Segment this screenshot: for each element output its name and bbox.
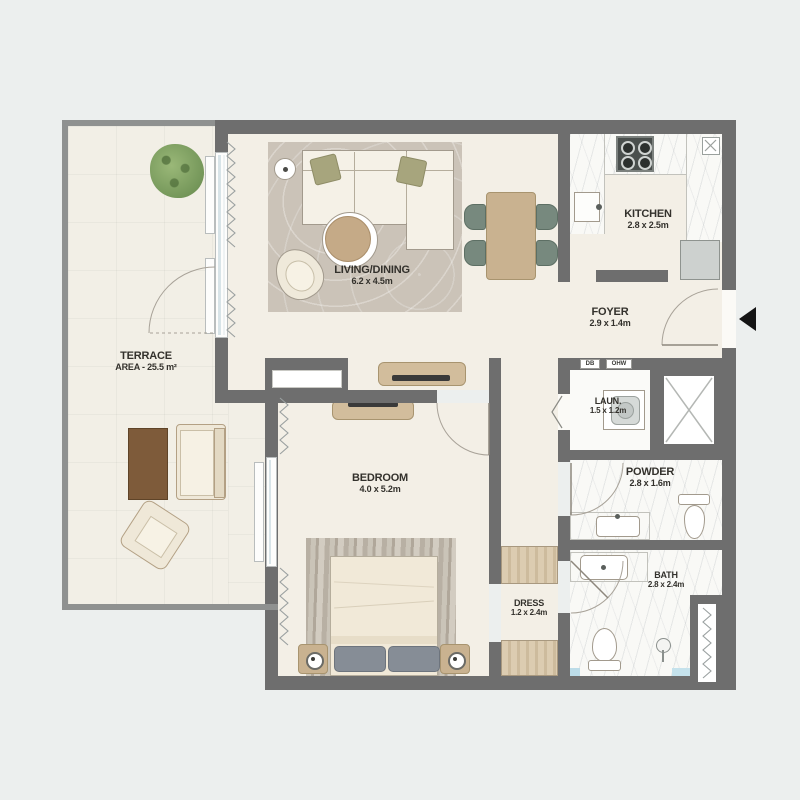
- bed-pillow: [388, 646, 440, 672]
- wall-dress-left-2: [489, 546, 501, 584]
- terrace-door-pane: [218, 155, 221, 335]
- stove-burner: [638, 156, 652, 170]
- wall-utility-bottom: [558, 450, 722, 460]
- wall-kitchen-left: [558, 134, 570, 282]
- shaft-x: [664, 376, 714, 444]
- dining-chair: [464, 204, 486, 230]
- room-label-laundry: LAUN. 1.5 x 1.2m: [590, 396, 626, 415]
- nightstand-lamp-dot: [311, 657, 315, 661]
- room-label-dress: DRESS 1.2 x 2.4m: [511, 598, 547, 617]
- floor-drain: [570, 668, 580, 676]
- bath-shaft: [698, 604, 716, 682]
- tv-console-living: [378, 362, 466, 386]
- bath-toilet-bowl: [592, 628, 617, 662]
- room-label-bedroom: BEDROOM 4.0 x 5.2m: [352, 472, 408, 495]
- dining-table: [486, 192, 536, 280]
- corridor-floor: [501, 358, 558, 546]
- wall-corridor-right-3: [558, 613, 570, 676]
- sofa-pillow: [395, 155, 427, 187]
- room-label-kitchen: KITCHEN 2.8 x 2.5m: [624, 208, 672, 231]
- wall-door-stub: [489, 358, 501, 403]
- dining-chair: [536, 240, 558, 266]
- floor-lamp-dot: [283, 167, 288, 172]
- wardrobe: [501, 546, 558, 584]
- terrace-door-sill: [205, 258, 215, 334]
- wall-laundry-right: [650, 370, 660, 452]
- wall-powder-bath: [558, 540, 722, 550]
- wall-kitchen-bottom: [596, 270, 668, 282]
- wall-corridor-right-2: [558, 516, 570, 561]
- powder-sink: [596, 516, 640, 537]
- tree-icon: [150, 144, 204, 198]
- bedroom-window: [266, 457, 277, 567]
- coffee-table-top: [325, 216, 371, 262]
- room-label-foyer: FOYER 2.9 x 1.4m: [589, 306, 630, 329]
- nightstand-lamp-dot: [453, 657, 457, 661]
- shower-stem: [662, 650, 664, 662]
- bath-toilet-tank: [588, 660, 621, 671]
- stove-burner: [638, 141, 652, 155]
- vent-icon: [702, 137, 720, 155]
- laundry-door-opening: [558, 394, 570, 430]
- kitchen-sink-faucet: [596, 204, 602, 210]
- wall-tag-db: DB: [580, 359, 600, 369]
- powder-toilet-tank: [678, 494, 710, 505]
- wall-tag-ohw: OHW: [606, 359, 632, 369]
- wall-terrace-top: [62, 120, 215, 126]
- bath-faucet: [601, 565, 606, 570]
- bedroom-window-sill: [254, 462, 264, 562]
- bedroom-window-pane: [269, 460, 271, 564]
- room-label-bath: BATH 2.8 x 2.4m: [648, 570, 684, 589]
- room-label-terrace: TERRACE AREA - 25.5 m²: [115, 350, 176, 373]
- entry-arrow-icon: [739, 307, 756, 331]
- wardrobe: [501, 640, 558, 676]
- wall-dress-left-3: [489, 642, 501, 676]
- terrace-sliding-door: [215, 152, 228, 338]
- room-label-powder: POWDER 2.8 x 1.6m: [626, 466, 674, 489]
- stove-burner: [621, 156, 635, 170]
- foyer-floor: [558, 282, 722, 358]
- outdoor-sofa-backrest: [214, 428, 225, 498]
- dining-chair: [536, 204, 558, 230]
- room-label-living-dining: LIVING/DINING 6.2 x 4.5m: [334, 264, 410, 287]
- outdoor-table: [128, 428, 168, 500]
- bed-pillow: [334, 646, 386, 672]
- wall-dress-left-1: [489, 403, 501, 546]
- wall-terrace-left: [62, 120, 68, 610]
- nightstand-lamp: [306, 652, 324, 670]
- wall-top: [215, 120, 736, 134]
- nightstand-lamp: [448, 652, 466, 670]
- terrace-door-pane: [223, 155, 225, 335]
- terrace-door-sill: [205, 156, 215, 234]
- stove-burner: [621, 141, 635, 155]
- wall-glass-stub-top: [215, 134, 228, 152]
- fridge: [680, 240, 720, 280]
- entry-door-opening: [722, 290, 736, 348]
- wall-right: [722, 120, 736, 690]
- wall-niche: [272, 370, 342, 388]
- bed-blanket-seam: [331, 636, 437, 644]
- wall-bottom: [265, 676, 736, 690]
- tv-living: [392, 375, 450, 381]
- powder-faucet: [615, 514, 620, 519]
- wall-terrace-bottom: [62, 604, 278, 610]
- outdoor-sofa-cushion: [180, 430, 214, 496]
- floor-plan: DB OHW TERRACE AREA - 25.5 m² L: [0, 0, 800, 800]
- dining-chair: [464, 240, 486, 266]
